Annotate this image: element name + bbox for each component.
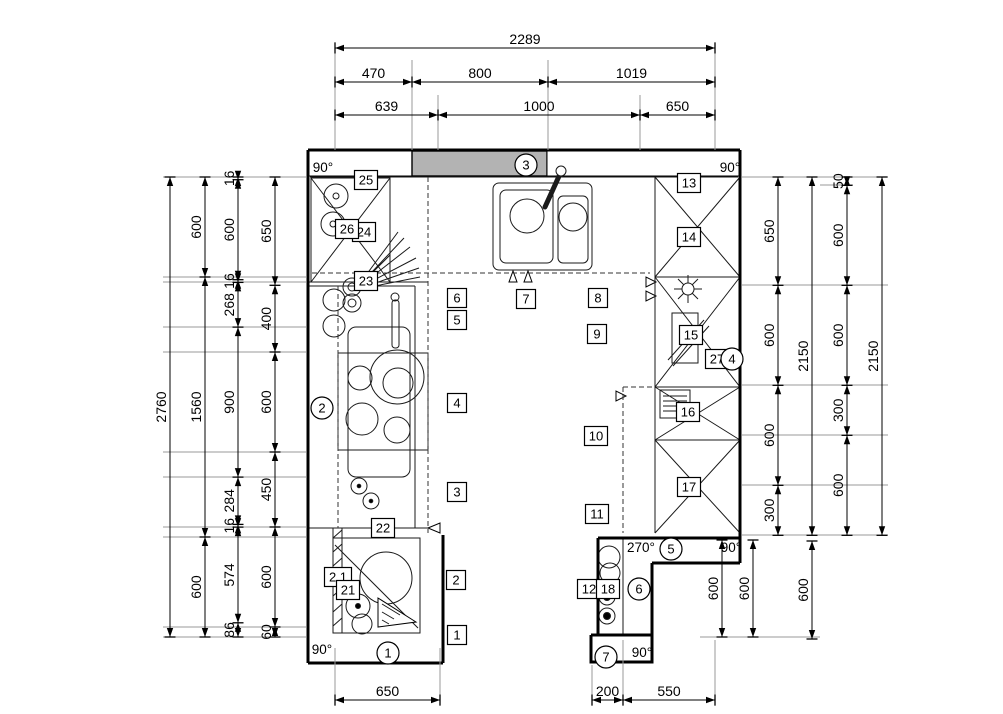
- callout-box-label: 4: [453, 396, 460, 411]
- callout-circle-label: 3: [522, 158, 529, 173]
- dim-arrow: [403, 79, 412, 85]
- window-white-bar: [547, 151, 740, 176]
- dim-arrow: [879, 526, 885, 535]
- dim-arrow: [706, 112, 715, 118]
- dim-arrow: [775, 376, 781, 385]
- callout-circle-label: 4: [728, 352, 735, 367]
- pot: [370, 350, 424, 404]
- dim-arrow: [844, 435, 850, 444]
- dim-label: 86: [221, 622, 237, 638]
- dim-arrow: [775, 526, 781, 535]
- vent-starburst: [674, 275, 702, 303]
- dim-label: 60: [258, 624, 274, 640]
- dim-label: 1019: [616, 65, 647, 81]
- burner: [348, 366, 372, 390]
- dim-arrow: [335, 697, 344, 703]
- dim-arrow: [844, 276, 850, 285]
- dim-label: 600: [258, 390, 274, 414]
- dim-arrow: [844, 526, 850, 535]
- dim-arrow: [167, 177, 173, 186]
- callout-box-label: 18: [601, 582, 615, 597]
- sink: [493, 166, 592, 270]
- dim-label: 16: [221, 273, 237, 289]
- dim-arrow: [235, 318, 241, 327]
- dim-arrow: [548, 79, 557, 85]
- dim-arrow: [235, 327, 241, 336]
- dim-arrow: [750, 628, 756, 637]
- dim-arrow: [202, 628, 208, 637]
- dim-arrow: [706, 79, 715, 85]
- dim-arrow: [335, 112, 344, 118]
- dim-arrow: [775, 177, 781, 186]
- dim-arrow: [335, 79, 344, 85]
- dim-label: 574: [221, 563, 237, 587]
- dim-arrow: [272, 527, 278, 536]
- callout-box-label: 6: [453, 291, 460, 306]
- dim-label: 550: [657, 683, 681, 699]
- callout-circle-label: 6: [635, 582, 642, 597]
- dim-label: 200: [596, 683, 620, 699]
- callout-box-label: 5: [453, 313, 460, 328]
- callout-box-label: 13: [682, 176, 696, 191]
- burner: [383, 368, 413, 398]
- dim-label: 2760: [153, 391, 169, 422]
- dim-arrow: [750, 540, 756, 549]
- dim-arrow: [438, 112, 447, 118]
- dim-arrow: [879, 177, 885, 186]
- dim-label: 16: [221, 170, 237, 186]
- dim-arrow: [775, 385, 781, 394]
- dim-arrow: [272, 452, 278, 461]
- pointer-icon: [428, 523, 440, 533]
- dim-arrow: [202, 177, 208, 186]
- callout-circle-label: 7: [602, 650, 609, 665]
- dim-arrow: [809, 526, 815, 535]
- dim-arrow: [272, 352, 278, 361]
- extension-lines: [163, 42, 888, 706]
- dim-arrow: [623, 697, 632, 703]
- dim-label: 639: [375, 98, 399, 114]
- burner: [384, 417, 410, 443]
- dim-label: 600: [830, 473, 846, 497]
- dim-label: 470: [362, 65, 386, 81]
- dim-label: 600: [258, 565, 274, 589]
- dim-arrow: [431, 697, 440, 703]
- dim-arrow: [631, 112, 640, 118]
- dim-label: 16: [221, 518, 237, 534]
- callout-box-label: 21: [341, 583, 355, 598]
- dim-arrow: [775, 476, 781, 485]
- dim-arrow: [809, 177, 815, 186]
- dim-label: 600: [188, 575, 204, 599]
- dim-label: 900: [221, 390, 237, 414]
- callout-box-label: 17: [682, 480, 696, 495]
- dim-arrow: [272, 343, 278, 352]
- callout-box-label: 7: [522, 292, 529, 307]
- callout-box-label: 8: [594, 291, 601, 306]
- dim-label: 284: [221, 489, 237, 513]
- dim-arrow: [202, 528, 208, 537]
- dim-label: 600: [830, 323, 846, 347]
- dim-label: 300: [830, 398, 846, 422]
- dim-label: 50: [830, 173, 846, 189]
- pan-zone: [348, 327, 410, 477]
- dim-label: 650: [376, 683, 400, 699]
- dim-arrow: [235, 477, 241, 486]
- callout-box-label: 15: [684, 328, 698, 343]
- dim-label: 1000: [523, 98, 554, 114]
- callout-box-label: 26: [340, 222, 354, 237]
- callout-box-label: 1: [453, 628, 460, 643]
- dim-label: 300: [761, 498, 777, 522]
- dim-arrow: [706, 697, 715, 703]
- dim-label: 600: [761, 323, 777, 347]
- dim-arrow: [844, 426, 850, 435]
- dim-arrow: [844, 285, 850, 294]
- dim-label: 650: [258, 219, 274, 243]
- dim-arrow: [167, 628, 173, 637]
- dim-arrow: [202, 537, 208, 546]
- dim-label: 2150: [865, 340, 881, 371]
- callout-box-label: 16: [681, 405, 695, 420]
- dim-label: 600: [221, 218, 237, 242]
- angle-label: 90°: [312, 642, 332, 657]
- dim-arrow: [844, 385, 850, 394]
- dim-arrow: [719, 628, 725, 637]
- dim-arrow: [706, 45, 715, 51]
- dim-label: 650: [761, 219, 777, 243]
- callout-circle-label: 2: [318, 401, 325, 416]
- dim-label: 400: [258, 307, 274, 331]
- socket: [343, 294, 361, 312]
- callout-circle-label: 1: [384, 646, 391, 661]
- dim-arrow: [640, 112, 649, 118]
- angle-label: 90°: [313, 160, 333, 175]
- dim-arrow: [235, 614, 241, 623]
- dim-label: 2289: [509, 31, 540, 47]
- dim-arrow: [202, 268, 208, 277]
- callout-box-label: 9: [593, 327, 600, 342]
- dim-label: 268: [221, 293, 237, 317]
- dim-label: 650: [666, 98, 690, 114]
- dim-arrow: [429, 112, 438, 118]
- dim-label: 600: [736, 577, 752, 601]
- dim-label: 600: [705, 577, 721, 601]
- dim-label: 600: [795, 578, 811, 602]
- callout-box-label: 14: [682, 230, 696, 245]
- dimension-chains: 2760600156060016600162689002841657486650…: [153, 31, 888, 706]
- dim-label: 600: [188, 215, 204, 239]
- dim-label: 450: [258, 478, 274, 502]
- callout-box-label: 2: [452, 573, 459, 588]
- dim-label: 600: [761, 423, 777, 447]
- dim-arrow: [809, 630, 815, 639]
- angle-label: 270°: [627, 540, 655, 555]
- pot-handle: [392, 300, 399, 348]
- kitchen-floor-plan: 2760600156060016600162689002841657486650…: [0, 0, 1003, 714]
- dim-arrow: [335, 45, 344, 51]
- triangle-icon: [616, 391, 626, 401]
- angle-label: 90°: [721, 540, 741, 555]
- dim-arrow: [272, 443, 278, 452]
- dim-label: 800: [468, 65, 492, 81]
- dim-arrow: [809, 541, 815, 550]
- callout-box-label: 10: [589, 429, 603, 444]
- callout-box-label: 3: [453, 485, 460, 500]
- burner: [346, 403, 378, 435]
- dim-arrow: [272, 276, 278, 285]
- dim-arrow: [412, 79, 421, 85]
- callout-box-label: 25: [359, 173, 373, 188]
- callout-circle-label: 5: [667, 542, 674, 557]
- callout-box-label: 12: [582, 582, 596, 597]
- dim-arrow: [272, 177, 278, 186]
- callout-box-label: 22: [376, 521, 390, 536]
- dim-arrow: [775, 485, 781, 494]
- angle-label: 90°: [720, 160, 740, 175]
- dim-label: 1560: [188, 391, 204, 422]
- callout-box-label: 11: [590, 507, 604, 522]
- callout-box-label: 23: [359, 274, 373, 289]
- dim-arrow: [272, 518, 278, 527]
- dim-arrow: [272, 285, 278, 294]
- dim-arrow: [539, 79, 548, 85]
- dim-label: 600: [830, 223, 846, 247]
- dim-arrow: [775, 285, 781, 294]
- dim-label: 2150: [795, 340, 811, 371]
- angle-label: 90°: [632, 645, 652, 660]
- dim-arrow: [235, 468, 241, 477]
- dim-arrow: [844, 376, 850, 385]
- dim-arrow: [775, 276, 781, 285]
